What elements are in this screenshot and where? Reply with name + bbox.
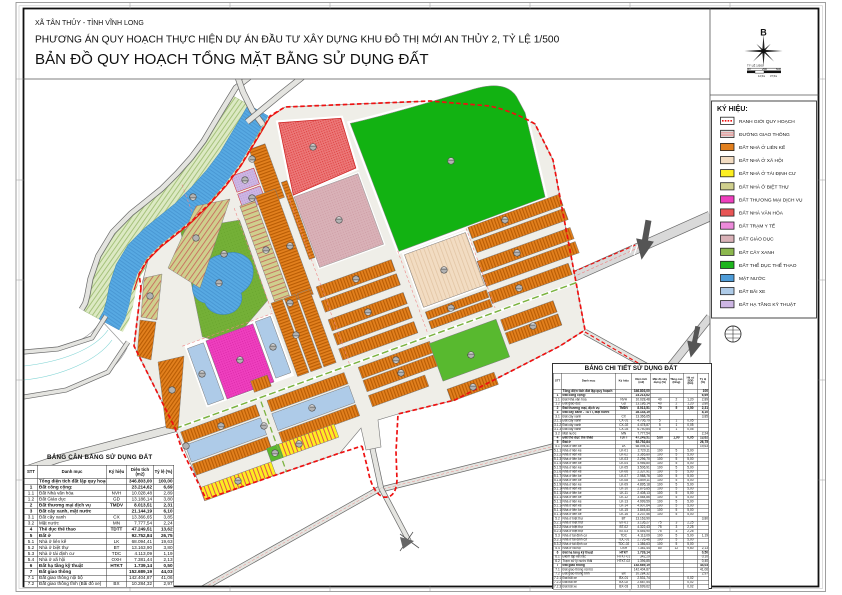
svg-text:ĐẤT HẠ TẦNG KỸ THUẬT: ĐẤT HẠ TẦNG KỸ THUẬT	[739, 301, 796, 308]
svg-text:ĐẤT THƯƠNG MẠI DỊCH VỤ: ĐẤT THƯƠNG MẠI DỊCH VỤ	[739, 196, 803, 203]
svg-text:12,5m: 12,5m	[758, 74, 765, 78]
svg-text:PHƯƠNG ÁN QUY HOẠCH THỰC HIỆN: PHƯƠNG ÁN QUY HOẠCH THỰC HIỆN DỰ ÁN ĐẦU …	[35, 33, 560, 46]
svg-text:KÝ HIỆU:: KÝ HIỆU:	[717, 104, 748, 113]
svg-text:ĐẤT NHÀ Ở TÁI ĐỊNH CƯ: ĐẤT NHÀ Ở TÁI ĐỊNH CƯ	[739, 170, 796, 177]
svg-text:0m: 0m	[747, 67, 751, 71]
svg-text:50m: 50m	[776, 67, 781, 71]
svg-text:37,5m: 37,5m	[770, 74, 777, 78]
svg-text:RANH GIỚI QUY HOẠCH: RANH GIỚI QUY HOẠCH	[739, 118, 795, 125]
svg-text:MẶT NƯỚC: MẶT NƯỚC	[739, 275, 766, 282]
svg-text:TỶ LỆ 1/500: TỶ LỆ 1/500	[747, 63, 764, 68]
svg-text:ĐẤT GIÁO DỤC: ĐẤT GIÁO DỤC	[739, 236, 774, 243]
svg-text:ĐẤT THỂ DỤC THỂ THAO: ĐẤT THỂ DỤC THỂ THAO	[739, 262, 797, 269]
svg-text:BẢN ĐỒ QUY HOẠCH TỔNG MẶT BẰNG: BẢN ĐỒ QUY HOẠCH TỔNG MẶT BẰNG SỬ DỤNG Đ…	[35, 50, 429, 68]
svg-text:ĐẤT CÂY XANH: ĐẤT CÂY XANH	[739, 249, 775, 256]
svg-text:ĐẤT NHÀ Ở XÃ HỘI: ĐẤT NHÀ Ở XÃ HỘI	[739, 157, 783, 164]
svg-text:B: B	[760, 28, 767, 38]
svg-text:ĐẤT TRẠM Y TẾ: ĐẤT TRẠM Y TẾ	[739, 223, 775, 230]
svg-text:ĐẤT NHÀ VĂN HÓA: ĐẤT NHÀ VĂN HÓA	[739, 210, 784, 217]
svg-text:XÃ TÂN THỦY - TỈNH VĨNH LONG: XÃ TÂN THỦY - TỈNH VĨNH LONG	[35, 18, 144, 27]
svg-text:ĐƯỜNG GIAO THÔNG: ĐƯỜNG GIAO THÔNG	[739, 131, 790, 138]
svg-text:25m: 25m	[762, 67, 767, 71]
svg-text:ĐẤT BÃI XE: ĐẤT BÃI XE	[739, 288, 765, 295]
